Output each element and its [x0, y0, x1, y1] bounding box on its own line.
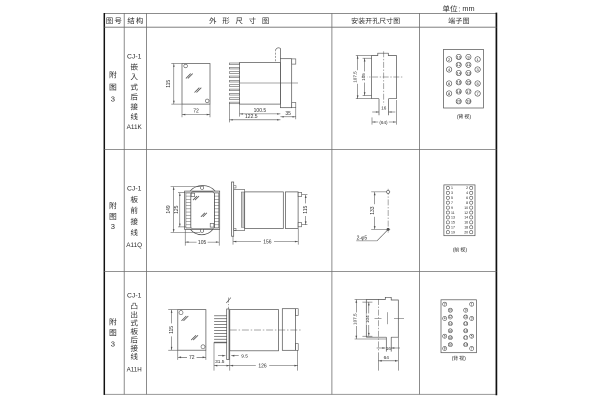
svg-text:A11K: A11K	[127, 124, 143, 131]
svg-text:3: 3	[451, 191, 453, 195]
svg-text:18: 18	[448, 336, 452, 340]
svg-text:A11Q: A11Q	[126, 242, 142, 249]
svg-text:8: 8	[448, 91, 450, 96]
svg-text:64: 64	[384, 355, 390, 361]
svg-text:100.5: 100.5	[254, 108, 267, 114]
svg-text:1: 1	[471, 302, 473, 306]
svg-text:9: 9	[465, 308, 467, 312]
svg-text:13: 13	[451, 216, 455, 220]
svg-text:115: 115	[169, 326, 175, 334]
svg-text:A11H: A11H	[127, 367, 142, 374]
svg-text:1: 1	[477, 57, 479, 62]
svg-text:4: 4	[466, 191, 468, 195]
svg-text:5: 5	[477, 81, 479, 86]
svg-text:2: 2	[448, 57, 450, 62]
svg-text:(64): (64)	[379, 120, 388, 125]
svg-text:19: 19	[451, 230, 455, 234]
svg-text:125: 125	[174, 205, 180, 214]
svg-text:16: 16	[464, 221, 468, 225]
svg-text:(: (	[457, 114, 459, 120]
svg-text:105: 105	[361, 73, 366, 81]
svg-text:11: 11	[464, 315, 468, 319]
svg-text:5: 5	[471, 334, 473, 338]
svg-text:3: 3	[111, 222, 115, 231]
svg-text:9.5: 9.5	[241, 354, 248, 360]
svg-text:12: 12	[448, 315, 452, 319]
svg-text:149: 149	[166, 205, 172, 214]
svg-text:2: 2	[444, 302, 446, 306]
svg-text:CJ-1: CJ-1	[127, 186, 142, 193]
svg-text:(: (	[453, 248, 455, 254]
svg-text:15: 15	[464, 329, 468, 333]
svg-text:133: 133	[370, 206, 376, 215]
svg-text:17: 17	[451, 226, 455, 230]
svg-text:10: 10	[464, 206, 468, 210]
svg-text:mm: mm	[462, 4, 474, 13]
svg-text:3: 3	[477, 67, 479, 72]
svg-text:16: 16	[457, 80, 461, 85]
svg-text:5: 5	[451, 196, 453, 200]
svg-text:): )	[469, 114, 471, 120]
svg-text:107.5: 107.5	[353, 71, 358, 83]
svg-text:8: 8	[466, 201, 468, 205]
svg-text:3: 3	[111, 340, 115, 349]
svg-text:122.5: 122.5	[245, 114, 258, 120]
svg-text:15: 15	[466, 80, 470, 85]
svg-text:16: 16	[381, 106, 387, 111]
svg-text:3: 3	[471, 317, 473, 321]
svg-text:14: 14	[448, 322, 452, 326]
svg-text:): )	[464, 356, 466, 362]
svg-text:11: 11	[451, 211, 455, 215]
svg-text:9: 9	[467, 54, 469, 59]
svg-text:20: 20	[464, 230, 468, 234]
svg-text:7: 7	[451, 201, 453, 205]
svg-text:13: 13	[466, 70, 470, 75]
svg-text:12: 12	[464, 211, 468, 215]
svg-text:12: 12	[457, 62, 461, 67]
svg-text:17: 17	[466, 89, 470, 94]
svg-text::: :	[458, 4, 460, 13]
svg-text:8: 8	[444, 347, 446, 351]
svg-text:18: 18	[457, 89, 461, 94]
svg-text:15: 15	[451, 221, 455, 225]
svg-text:(: (	[452, 356, 454, 362]
svg-text:CJ-1: CJ-1	[127, 54, 142, 61]
svg-text:16: 16	[448, 329, 452, 333]
svg-text:104: 104	[365, 315, 370, 323]
svg-text:11: 11	[466, 62, 470, 67]
svg-text:3: 3	[111, 95, 115, 104]
svg-text:6: 6	[444, 334, 446, 338]
svg-text:31.5: 31.5	[215, 359, 225, 365]
svg-text:115: 115	[303, 206, 309, 214]
svg-text:2-φ5: 2-φ5	[357, 235, 368, 241]
svg-text:10: 10	[448, 308, 452, 312]
svg-text:7: 7	[477, 91, 479, 96]
svg-text:72: 72	[193, 109, 199, 115]
svg-text:9: 9	[451, 206, 453, 210]
svg-text:72: 72	[189, 355, 195, 361]
svg-text:14: 14	[464, 216, 468, 220]
svg-text:107.5: 107.5	[353, 313, 358, 325]
svg-text:4: 4	[444, 317, 446, 321]
svg-text:1: 1	[451, 186, 453, 190]
svg-text:156: 156	[263, 240, 272, 246]
svg-text:): )	[465, 248, 467, 254]
svg-text:13: 13	[464, 322, 468, 326]
svg-text:20: 20	[448, 343, 452, 347]
svg-text:6: 6	[466, 196, 468, 200]
svg-text:19: 19	[466, 99, 470, 104]
svg-text:126: 126	[258, 363, 267, 369]
svg-text:17: 17	[464, 336, 468, 340]
svg-text:19: 19	[464, 343, 468, 347]
svg-text:6: 6	[448, 81, 450, 86]
svg-text:7: 7	[471, 347, 473, 351]
svg-text:18: 18	[464, 226, 468, 230]
svg-text:16: 16	[386, 346, 391, 351]
svg-text:35: 35	[285, 111, 291, 117]
svg-text:CJ-1: CJ-1	[127, 293, 142, 300]
svg-text:115: 115	[166, 80, 172, 88]
svg-text:2: 2	[466, 186, 468, 190]
svg-text:105: 105	[198, 240, 207, 246]
